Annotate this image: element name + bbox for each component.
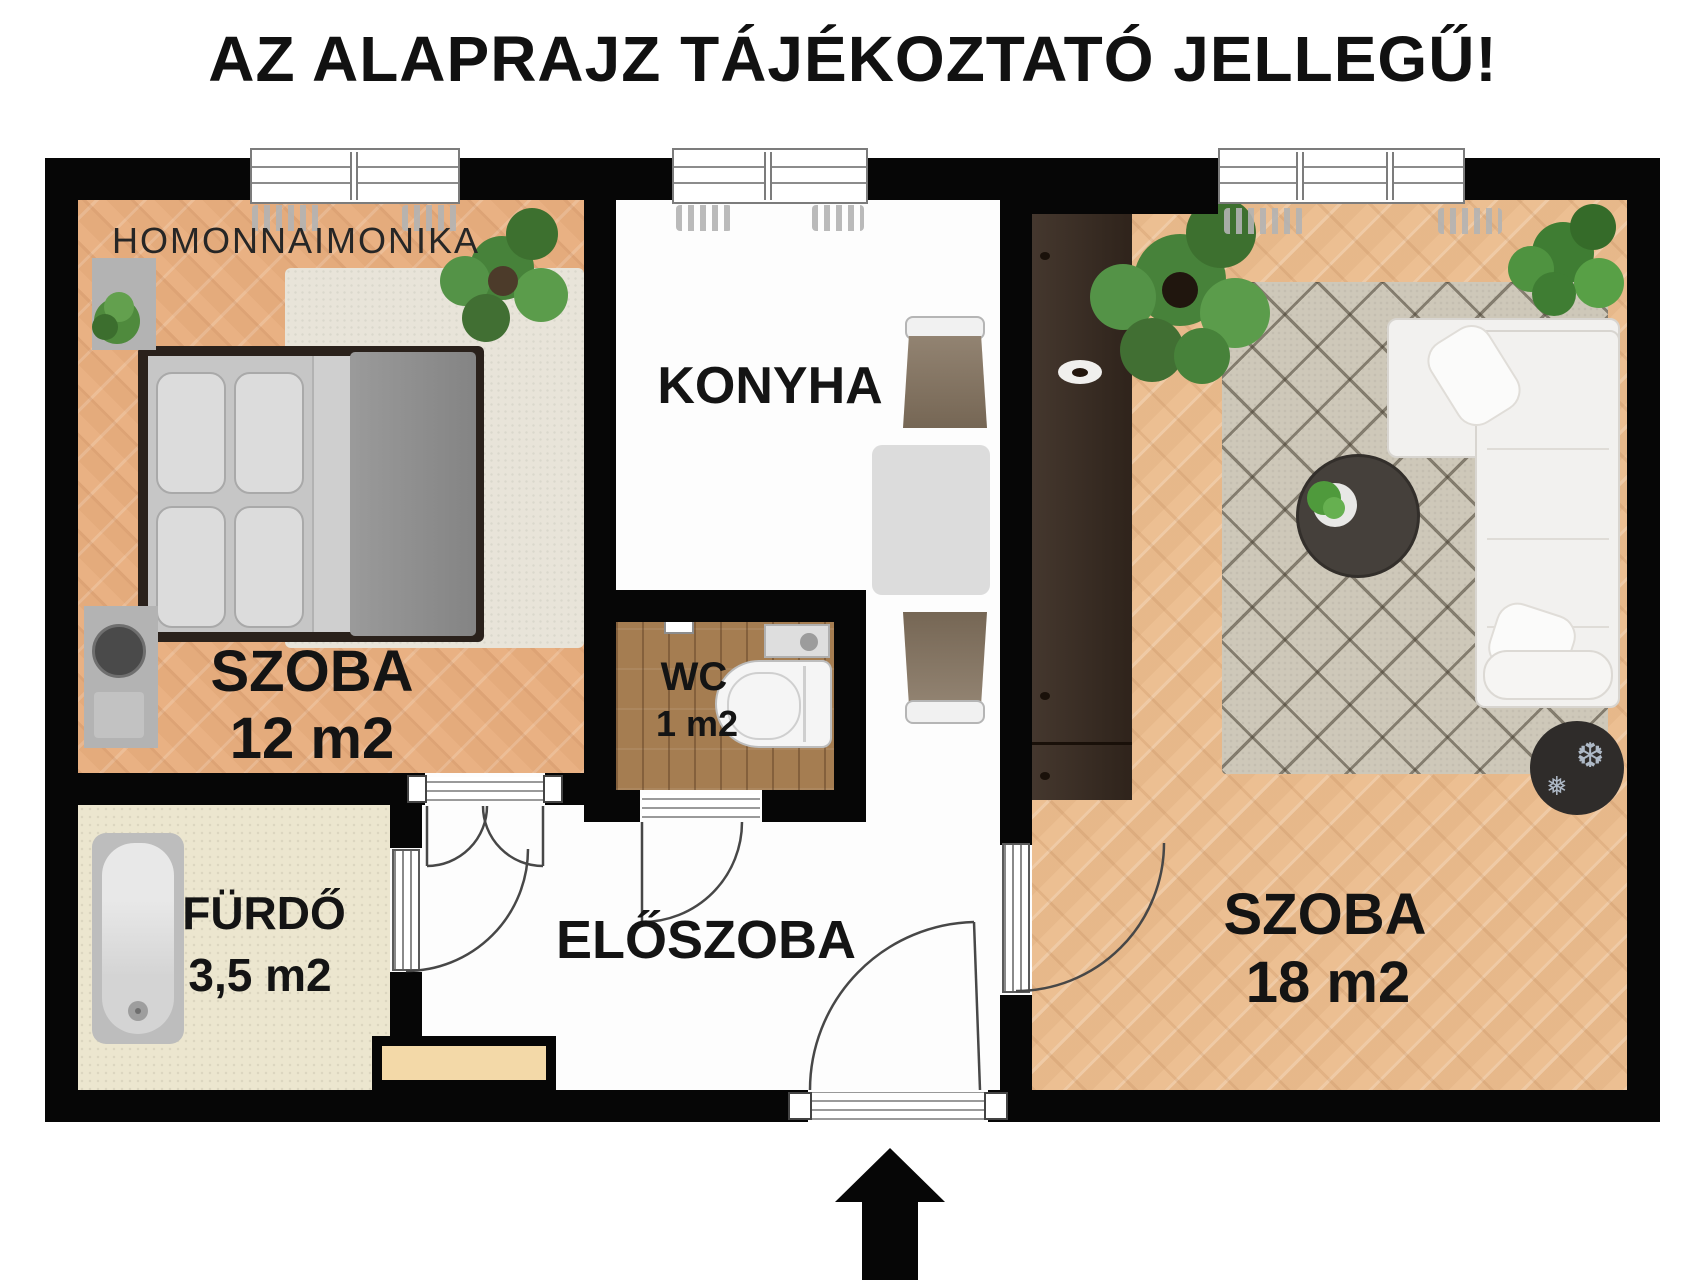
- bedroom-window: [250, 148, 460, 204]
- wc-label: WC: [661, 657, 728, 697]
- kitchen-label: KONYHA: [657, 360, 882, 412]
- bathroom-area-label: 3,5 m2: [188, 952, 331, 998]
- bed: [138, 346, 484, 642]
- living-room-label: SZOBA: [1224, 886, 1427, 944]
- dresser-tray: [94, 692, 144, 738]
- wall-bedroom-bottom: [45, 773, 425, 805]
- kitchen-table: [872, 445, 990, 595]
- bed-pillow: [234, 372, 304, 494]
- bedroom-area-label: 12 m2: [230, 710, 394, 768]
- wc-door-threshold: [642, 794, 760, 818]
- wc-sink: [764, 624, 830, 658]
- wall-top-step: [1000, 158, 1218, 214]
- curtain: [1438, 208, 1502, 234]
- dresser: [84, 606, 158, 748]
- nightstand-plant: [90, 292, 146, 348]
- kitchen-window: [672, 148, 868, 204]
- page-title: AZ ALAPRAJZ TÁJÉKOZTATÓ JELLEGŰ!: [0, 22, 1706, 96]
- door-jamb: [407, 775, 427, 803]
- entrance-threshold: [812, 1092, 984, 1120]
- wc-area-label: 1 m2: [656, 706, 738, 742]
- bathroom-door-leaf: [392, 849, 420, 971]
- snowflake-icon: ❆: [1576, 739, 1605, 773]
- side-table: ❆ ❅: [1530, 721, 1624, 815]
- entrance-arrow-icon: [835, 1148, 945, 1280]
- bathroom-label: FÜRDŐ: [182, 890, 346, 936]
- sofa-armrest: [1483, 650, 1613, 700]
- kitchen-chair: [903, 316, 987, 428]
- living-room-window: [1218, 148, 1465, 204]
- wall-left: [45, 158, 78, 1122]
- bathtub: [92, 833, 184, 1044]
- floor-plan-page: AZ ALAPRAJZ TÁJÉKOZTATÓ JELLEGŰ!: [0, 0, 1706, 1280]
- snowflake-icon: ❅: [1546, 773, 1568, 799]
- door-jamb: [788, 1092, 812, 1120]
- bed-sheet-fold: [312, 356, 350, 632]
- kitchen-chair: [903, 612, 987, 724]
- plant-pot: [1162, 272, 1198, 308]
- door-jamb: [543, 775, 563, 803]
- curtain: [676, 205, 732, 231]
- dresser-bowl: [92, 624, 146, 678]
- bed-duvet: [350, 352, 476, 636]
- sofa: [1387, 308, 1620, 700]
- wall-bottom: [988, 1090, 1660, 1122]
- watermark: HOMONNAIMONIKA: [112, 220, 480, 262]
- wall-wc-top: [584, 590, 866, 622]
- wall-wc-bottom: [762, 790, 866, 822]
- bed-pillow: [156, 372, 226, 494]
- hallway-cabinet: [372, 1036, 556, 1090]
- coffee-table: [1296, 454, 1420, 578]
- plant-pot: [488, 266, 518, 296]
- bedroom-door-threshold: [427, 777, 543, 801]
- wall-living-left: [1000, 158, 1032, 845]
- living-room-area-label: 18 m2: [1246, 954, 1410, 1012]
- curtain: [812, 205, 864, 231]
- hallway-label: ELŐSZOBA: [556, 913, 856, 967]
- living-room-door-leaf: [1002, 843, 1030, 993]
- wall-bottom: [45, 1090, 808, 1122]
- wall-wc-bottom: [584, 790, 640, 822]
- living-room-plant: [1508, 202, 1626, 322]
- bed-pillow: [156, 506, 226, 628]
- bedroom-label: SZOBA: [211, 643, 414, 701]
- wall-right: [1627, 158, 1660, 1122]
- bed-pillow: [234, 506, 304, 628]
- wall-bedroom-kitchen: [584, 158, 616, 822]
- curtain: [1224, 208, 1304, 234]
- wall-wc-right: [834, 590, 866, 822]
- door-jamb: [984, 1092, 1008, 1120]
